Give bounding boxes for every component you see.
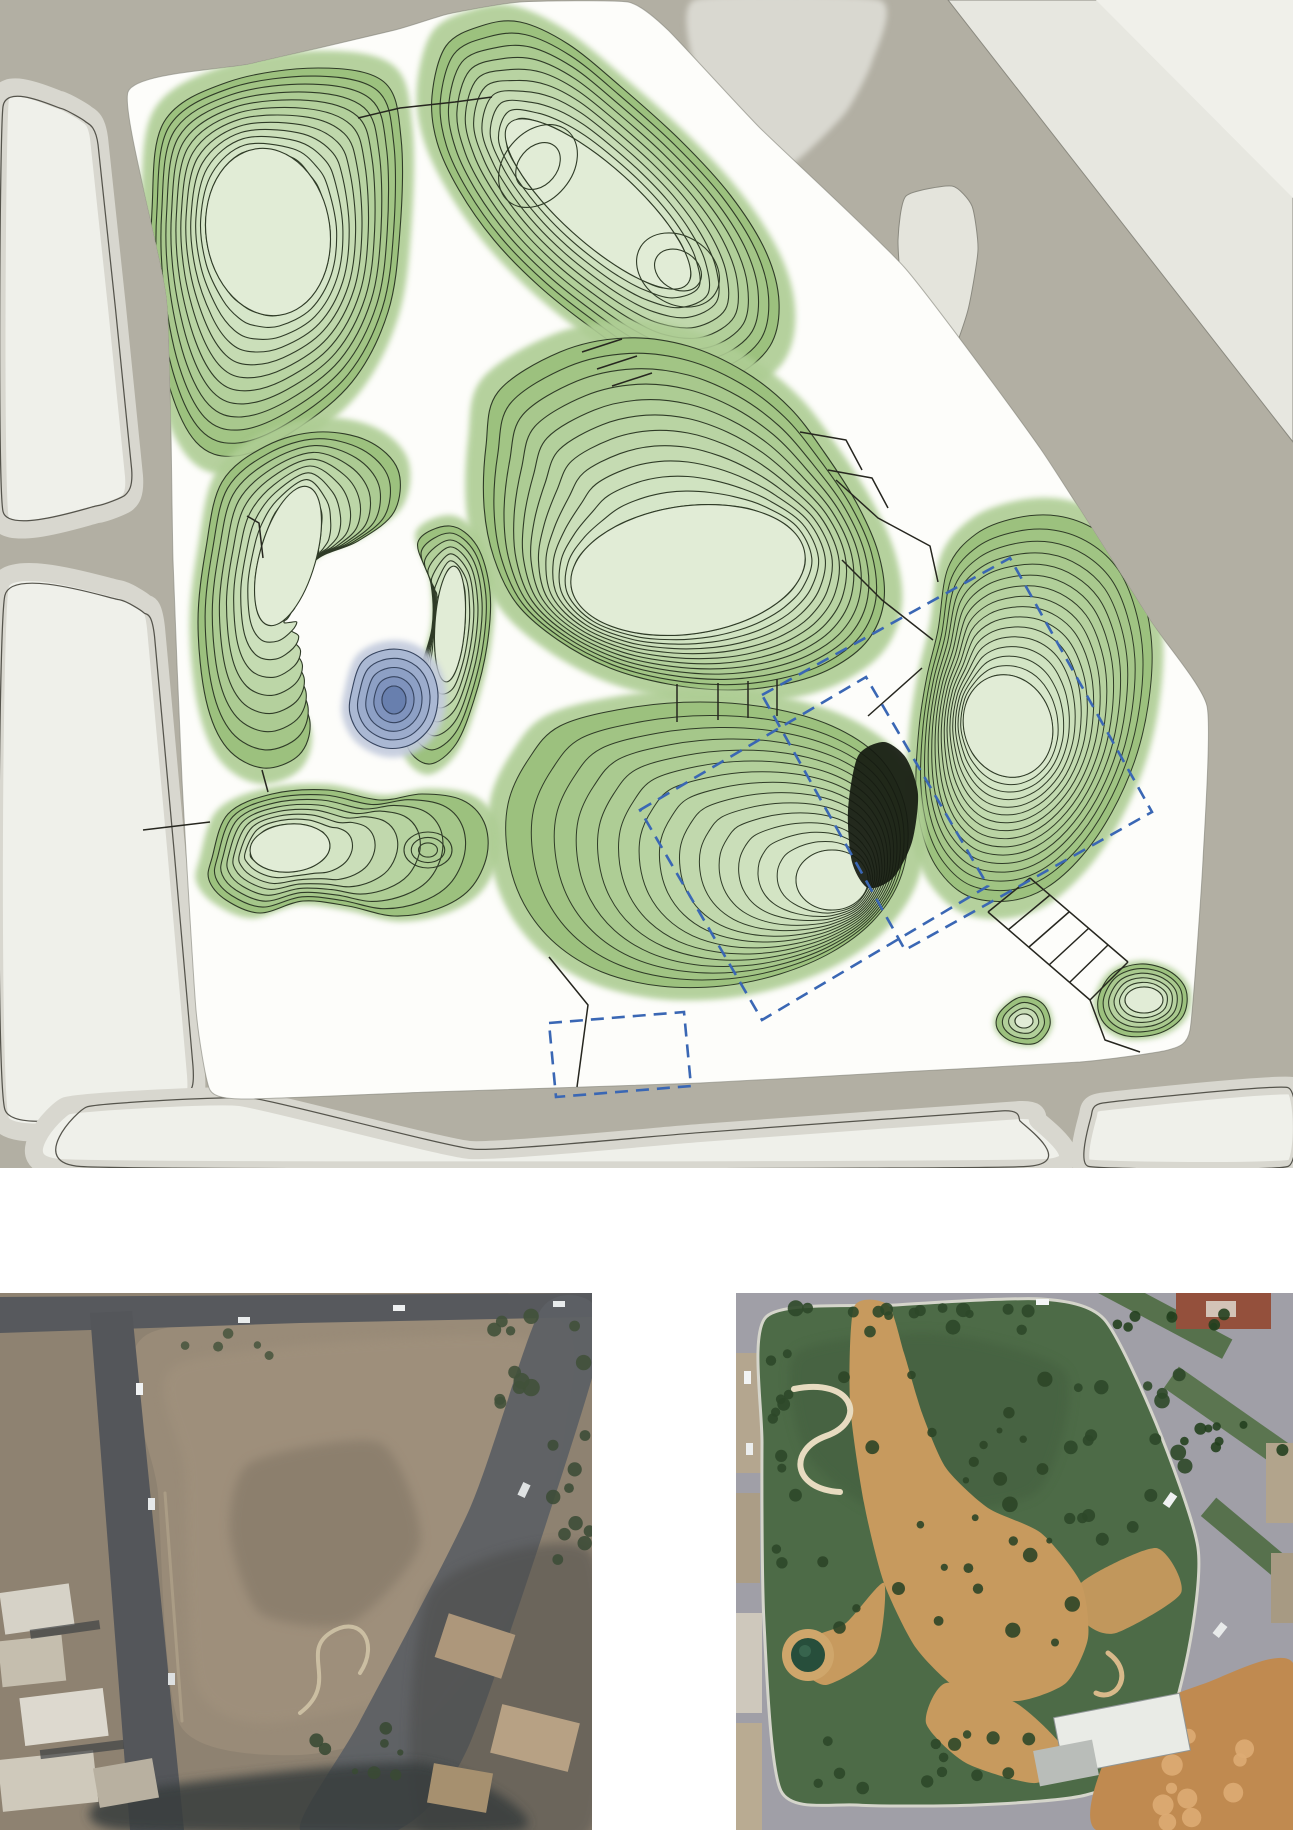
site-plan-drawing	[0, 0, 1293, 1168]
mound-southwest-dumbbell	[195, 784, 500, 922]
aerial-photo-after	[736, 1293, 1293, 1830]
aerial-photo-before	[0, 1293, 592, 1830]
block-west	[0, 572, 196, 1133]
aerial-after-built-park	[736, 1293, 1293, 1830]
aerial-before-empty-lot	[0, 1293, 592, 1830]
block-southeast	[1080, 1085, 1293, 1168]
presentation-board	[0, 0, 1293, 1830]
pond	[342, 640, 447, 757]
